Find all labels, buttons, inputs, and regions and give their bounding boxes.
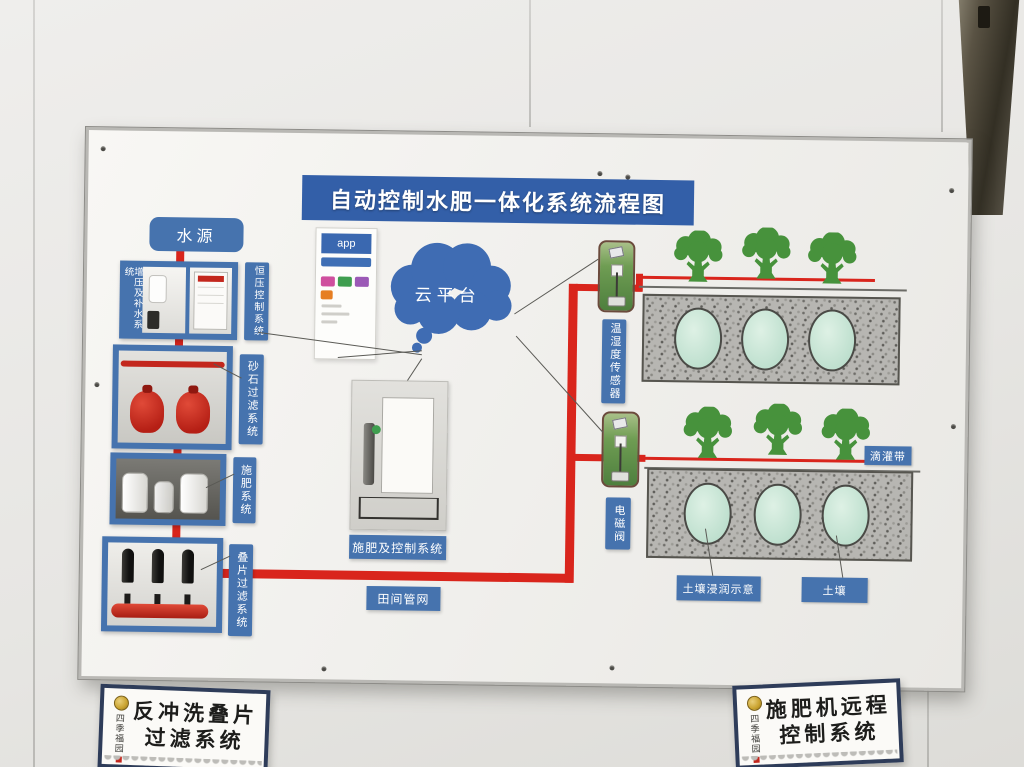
- white-tank-shape: [154, 481, 174, 513]
- screw-icon: [94, 382, 99, 387]
- screw-icon: [951, 424, 956, 429]
- tank-cap-shape: [188, 385, 198, 393]
- sensor-ground-unit-shape: [611, 471, 629, 481]
- app-title: app: [321, 233, 371, 254]
- sign-seal-column: 四季福园: [108, 692, 133, 765]
- sand-filter-label: 砂石过滤系统: [239, 354, 264, 444]
- wet-zone-shape: [808, 309, 857, 372]
- water-tank-shape: [149, 275, 167, 303]
- sensor-pole-shape: [619, 443, 621, 473]
- disc-filter-system-box: [101, 536, 223, 633]
- red-pipe-shape: [121, 361, 225, 368]
- field-network-label: 田间管网: [366, 586, 440, 611]
- fertilizer-system-box: [109, 452, 226, 526]
- machine-logo-dot: [372, 425, 381, 434]
- pipe-fitting-shape: [124, 594, 130, 604]
- sand-filter-photo: [118, 350, 227, 443]
- disc-filter-photo: [107, 542, 217, 627]
- wet-zone-shape: [683, 482, 732, 545]
- sensor-photo-top: [597, 240, 635, 313]
- tank-cap-shape: [142, 385, 152, 393]
- seal-text: 四季福园: [113, 713, 128, 753]
- temp-humidity-sensor-label: 温湿度传感器: [601, 319, 626, 403]
- cloud-platform: 云平台: [376, 234, 520, 356]
- screw-icon: [609, 665, 614, 670]
- sign-seal-column: 四季福园: [743, 692, 768, 765]
- seal-text: 四季福园: [748, 714, 763, 755]
- water-source-box: 水源: [149, 217, 243, 252]
- app-text-bar: [321, 312, 349, 315]
- door-frame-latch: [978, 6, 990, 28]
- sign-backwash-filter: 四季福园 反冲洗叠片 过滤系统: [97, 684, 270, 767]
- page-title: 自动控制水肥一体化系统流程图: [302, 175, 695, 225]
- fertilizer-system-label: 施肥系统: [232, 457, 256, 523]
- solar-panel-shape: [608, 246, 624, 259]
- fertigation-machine-photo: [349, 380, 448, 531]
- tree-icon: [803, 232, 862, 285]
- disc-filter-label: 叠片过滤系统: [228, 544, 253, 636]
- filter-cylinder-shape: [182, 549, 194, 583]
- photo-scene: 自动控制水肥一体化系统流程图 水源 增压及补水系统: [0, 0, 1024, 767]
- tree-icon: [669, 230, 728, 283]
- sensor-ground-unit-shape: [608, 296, 626, 306]
- app-text-bar: [322, 304, 342, 307]
- sign-line2: 过滤系统: [144, 726, 245, 756]
- cabinet-line: [197, 303, 224, 304]
- tree-icon: [748, 403, 807, 456]
- cabinet-line: [197, 295, 224, 296]
- solar-panel-shape: [612, 417, 628, 430]
- app-chip-pink: [321, 276, 335, 286]
- cabinet-shape: [193, 272, 228, 330]
- sign-line2: 控制系统: [779, 719, 880, 750]
- app-chip-green: [338, 277, 352, 287]
- wall-seam-top-right: [941, 0, 943, 132]
- soil-block-row2: [646, 468, 913, 562]
- cloud-platform-label: 云平台: [377, 280, 519, 307]
- red-manifold-shape: [111, 603, 208, 618]
- ground-line-row1: [639, 286, 907, 292]
- app-text-bar: [321, 320, 337, 323]
- screw-icon: [321, 666, 326, 671]
- tree-icon: [737, 227, 796, 280]
- wet-zone-shape: [741, 308, 790, 371]
- soil-label: 土壤: [801, 577, 867, 603]
- app-screenshot: app: [314, 227, 378, 360]
- red-tank-shape: [130, 391, 165, 433]
- app-toolbar-shape: [321, 257, 371, 267]
- sand-filter-system-box: [112, 344, 233, 450]
- sensor-photo-bottom: [601, 411, 640, 488]
- wet-zone-shape: [821, 484, 870, 547]
- control-cabinet-photo: [189, 267, 232, 334]
- machine-label: 施肥及控制系统: [349, 535, 446, 560]
- app-chip-purple: [355, 277, 369, 287]
- flow-diagram-board: 自动控制水肥一体化系统流程图 水源 增压及补水系统: [78, 127, 972, 691]
- screw-icon: [597, 171, 602, 176]
- constant-pressure-label: 恒压控制系统: [244, 262, 269, 340]
- cabinet-line: [197, 287, 224, 288]
- seal-logo-icon: [746, 696, 762, 712]
- filter-cylinder-shape: [152, 549, 164, 583]
- white-tank-shape: [180, 473, 209, 513]
- wall-seam-top-mid: [529, 0, 531, 127]
- soil-block-row1: [641, 294, 900, 386]
- soil-wetting-label: 土壤浸润示意: [676, 575, 760, 601]
- pipe-fitting-shape: [154, 594, 160, 604]
- app-buttons-row: [321, 276, 371, 287]
- sign-remote-fertilizer: 四季福园 施肥机远程 控制系统: [732, 678, 904, 767]
- tree-icon: [678, 406, 737, 459]
- wet-zone-shape: [674, 307, 723, 370]
- filter-cylinder-shape: [122, 549, 134, 583]
- drip-tape-label: 滴灌带: [864, 446, 911, 466]
- pipe-fitting-shape: [184, 594, 190, 604]
- red-tank-shape: [176, 391, 211, 433]
- pipe-right-trunk: [565, 284, 578, 583]
- pipe-bottom-main: [221, 569, 573, 583]
- sensor-pole-shape: [616, 272, 618, 298]
- pump-shape: [147, 311, 159, 329]
- wall-seam-left: [33, 0, 35, 767]
- app-chip-orange: [321, 290, 333, 299]
- water-tank-photo: [142, 267, 185, 334]
- machine-base-frame: [359, 497, 439, 520]
- screw-icon: [949, 188, 954, 193]
- fertilizer-tanks-photo: [116, 458, 221, 519]
- solenoid-valve-label: 电磁阀: [605, 497, 631, 549]
- machine-cabinet-shape: [381, 397, 434, 494]
- seal-logo-icon: [113, 695, 129, 711]
- wet-zone-shape: [753, 483, 802, 546]
- boost-supply-system-label: 增压及补水系统: [125, 267, 139, 333]
- cabinet-display-shape: [197, 276, 224, 282]
- white-tank-shape: [122, 473, 149, 513]
- screw-icon: [101, 146, 106, 151]
- boost-supply-system-box: 增压及补水系统: [119, 260, 238, 340]
